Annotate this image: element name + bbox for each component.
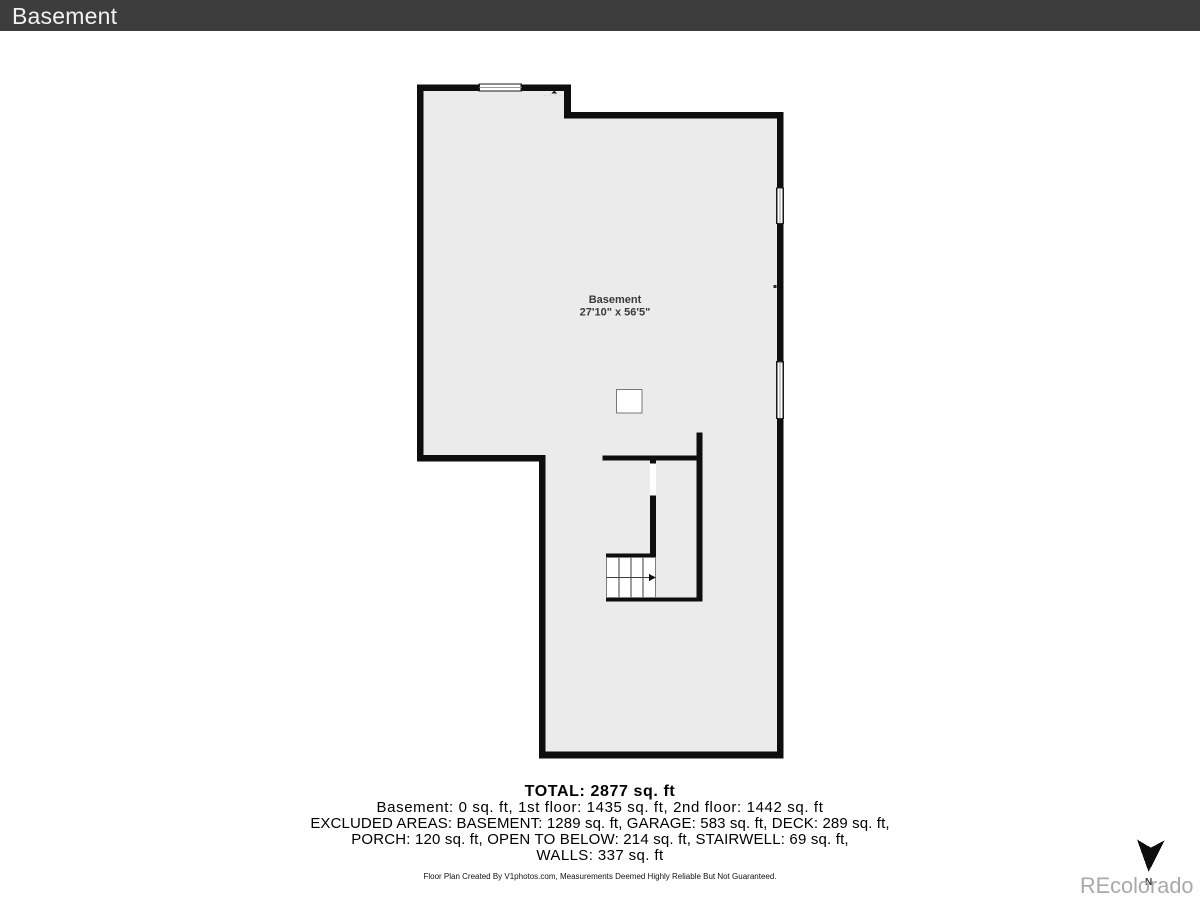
svg-text:Basement: Basement xyxy=(589,294,642,306)
svg-text:27'10" x 56'5": 27'10" x 56'5" xyxy=(580,306,651,318)
